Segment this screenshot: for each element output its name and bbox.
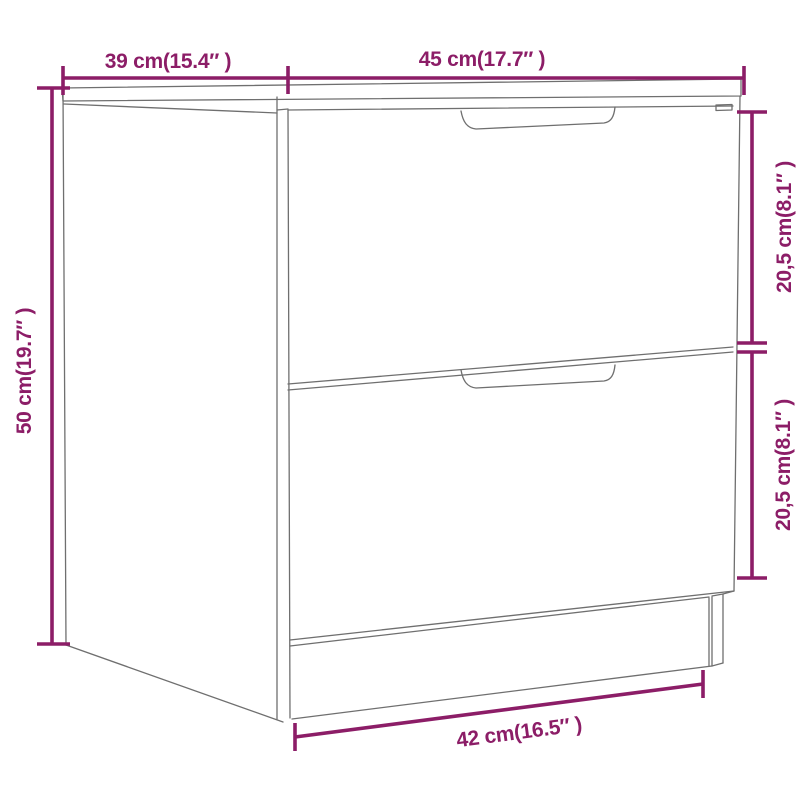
side-panel: [63, 90, 290, 722]
drawer-handle-top: [461, 107, 615, 129]
dimension-diagram: 39 cm(15.4″ ) 45 cm(17.7″ ) 50 cm(19.7″ …: [0, 0, 800, 800]
dimension-top: 39 cm(15.4″ ) 45 cm(17.7″ ): [63, 48, 744, 95]
dimension-label-left-height: 50 cm(19.7″ ): [13, 308, 36, 434]
dimension-label-right-upper: 20,5 cm(8.1″ ): [773, 161, 796, 293]
plinth: [292, 591, 734, 719]
dimension-label-right-lower: 20,5 cm(8.1″ ): [772, 399, 795, 531]
drawer-divider: [288, 347, 733, 390]
dimension-label-bottom-width: 42 cm(16.5″ ): [455, 713, 583, 752]
dimension-label-top-width: 45 cm(17.7″ ): [419, 48, 545, 71]
cabinet-drawing: [62, 79, 741, 722]
dimension-right-lower: 20,5 cm(8.1″ ): [737, 352, 795, 578]
top-panel: [62, 79, 741, 101]
nightstand-diagram-svg: 39 cm(15.4″ ) 45 cm(17.7″ ) 50 cm(19.7″ …: [0, 0, 800, 800]
dimension-label-top-depth: 39 cm(15.4″ ): [105, 50, 231, 73]
dimension-left-height: 50 cm(19.7″ ): [13, 88, 70, 644]
dimension-right-upper: 20,5 cm(8.1″ ): [737, 112, 796, 343]
front-face: [288, 96, 740, 646]
